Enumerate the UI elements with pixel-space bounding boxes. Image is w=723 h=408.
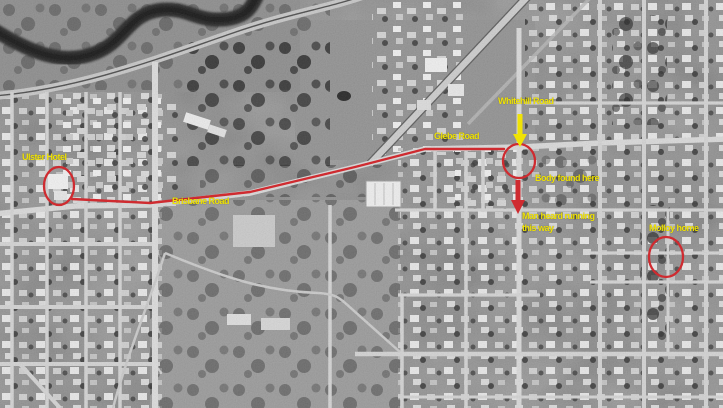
annotated-aerial-photo: Ulster Hotel Brisbane Road Glebe Road Wh… bbox=[0, 0, 723, 408]
ulster-hotel-label: Ulster Hotel bbox=[22, 151, 67, 163]
ulster-hotel-circle bbox=[44, 167, 74, 205]
man-running-label: Man heard running this way bbox=[522, 210, 595, 234]
molloy-home-label: Molloy home bbox=[649, 222, 699, 234]
annotation-overlay bbox=[0, 0, 723, 408]
molloy-home-circle bbox=[649, 237, 683, 277]
body-found-label: Body found here bbox=[535, 172, 599, 184]
body-location-circle bbox=[503, 144, 535, 178]
whitehill-road-label: Whitehill Road bbox=[498, 95, 554, 107]
whitehill-road-arrow bbox=[513, 114, 527, 147]
running-direction-arrow bbox=[511, 180, 525, 214]
man-running-line2: this way bbox=[522, 222, 595, 234]
brisbane-road-label: Brisbane Road bbox=[172, 195, 229, 207]
man-running-line1: Man heard running bbox=[522, 210, 595, 222]
glebe-road-label: Glebe Road bbox=[434, 130, 479, 142]
route-line bbox=[72, 149, 504, 203]
